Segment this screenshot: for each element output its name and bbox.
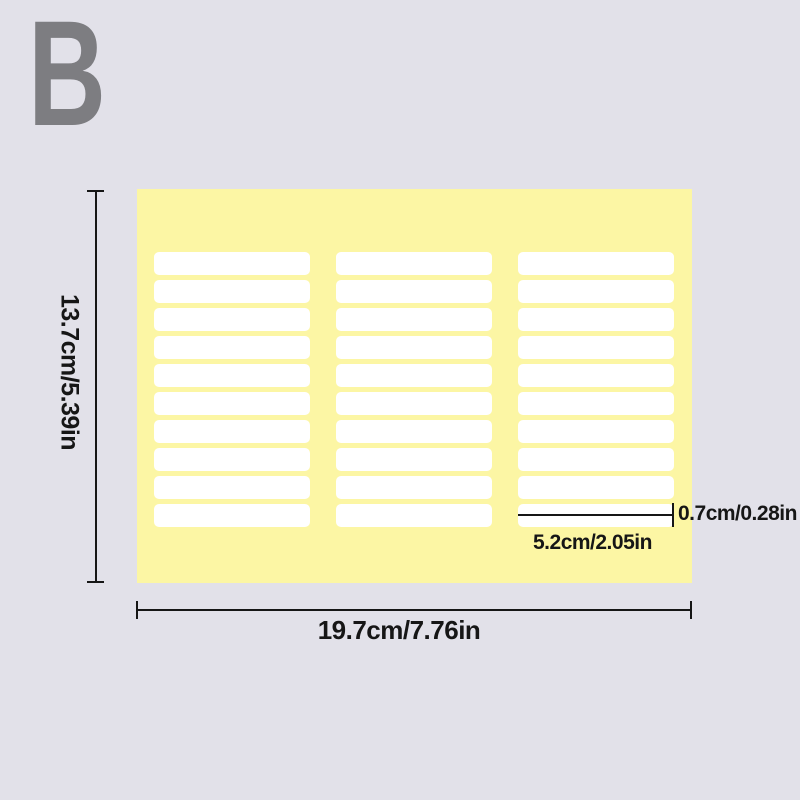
sheet-height-dimension-line (95, 191, 97, 582)
label-sticker (336, 420, 492, 443)
sheet-height-dimension-cap-top (87, 190, 104, 192)
label-width-dimension-line (518, 514, 673, 516)
label-sticker (154, 364, 310, 387)
label-sticker (154, 420, 310, 443)
sheet-width-dimension-label: 19.7cm/7.76in (318, 615, 481, 646)
label-sticker (336, 476, 492, 499)
sheet-width-dimension-line (137, 609, 691, 611)
label-sticker (336, 504, 492, 527)
label-sticker (154, 280, 310, 303)
label-sticker (518, 280, 674, 303)
label-sticker (518, 448, 674, 471)
label-sticker (154, 448, 310, 471)
label-sticker (336, 252, 492, 275)
label-sticker (154, 504, 310, 527)
label-sticker (518, 420, 674, 443)
label-sticker (154, 336, 310, 359)
label-sticker (336, 392, 492, 415)
variant-letter: B (28, 0, 106, 148)
label-sticker (518, 308, 674, 331)
label-sticker (518, 476, 674, 499)
sheet-height-dimension-cap-bottom (87, 581, 104, 583)
label-sticker (518, 364, 674, 387)
sheet-width-dimension-cap-right (690, 601, 692, 619)
label-sticker (154, 392, 310, 415)
label-sticker (336, 364, 492, 387)
label-sticker (518, 252, 674, 275)
product-dimension-diagram: B 13.7cm/5.39in 19.7cm/7.76in 0.7cm/0.28… (0, 0, 800, 800)
label-sticker (518, 392, 674, 415)
label-height-dimension-label: 0.7cm/0.28in (678, 502, 797, 526)
label-sticker (154, 308, 310, 331)
label-sticker (518, 336, 674, 359)
sheet-height-dimension-label: 13.7cm/5.39in (55, 294, 84, 450)
label-sticker (336, 336, 492, 359)
label-width-dimension-label: 5.2cm/2.05in (533, 531, 652, 555)
label-sticker (336, 308, 492, 331)
label-sticker (154, 252, 310, 275)
label-sticker (154, 476, 310, 499)
label-sticker (336, 280, 492, 303)
sheet-width-dimension-cap-left (136, 601, 138, 619)
label-sheet (137, 189, 692, 583)
label-sticker (336, 448, 492, 471)
label-height-dimension-tick (672, 503, 674, 527)
